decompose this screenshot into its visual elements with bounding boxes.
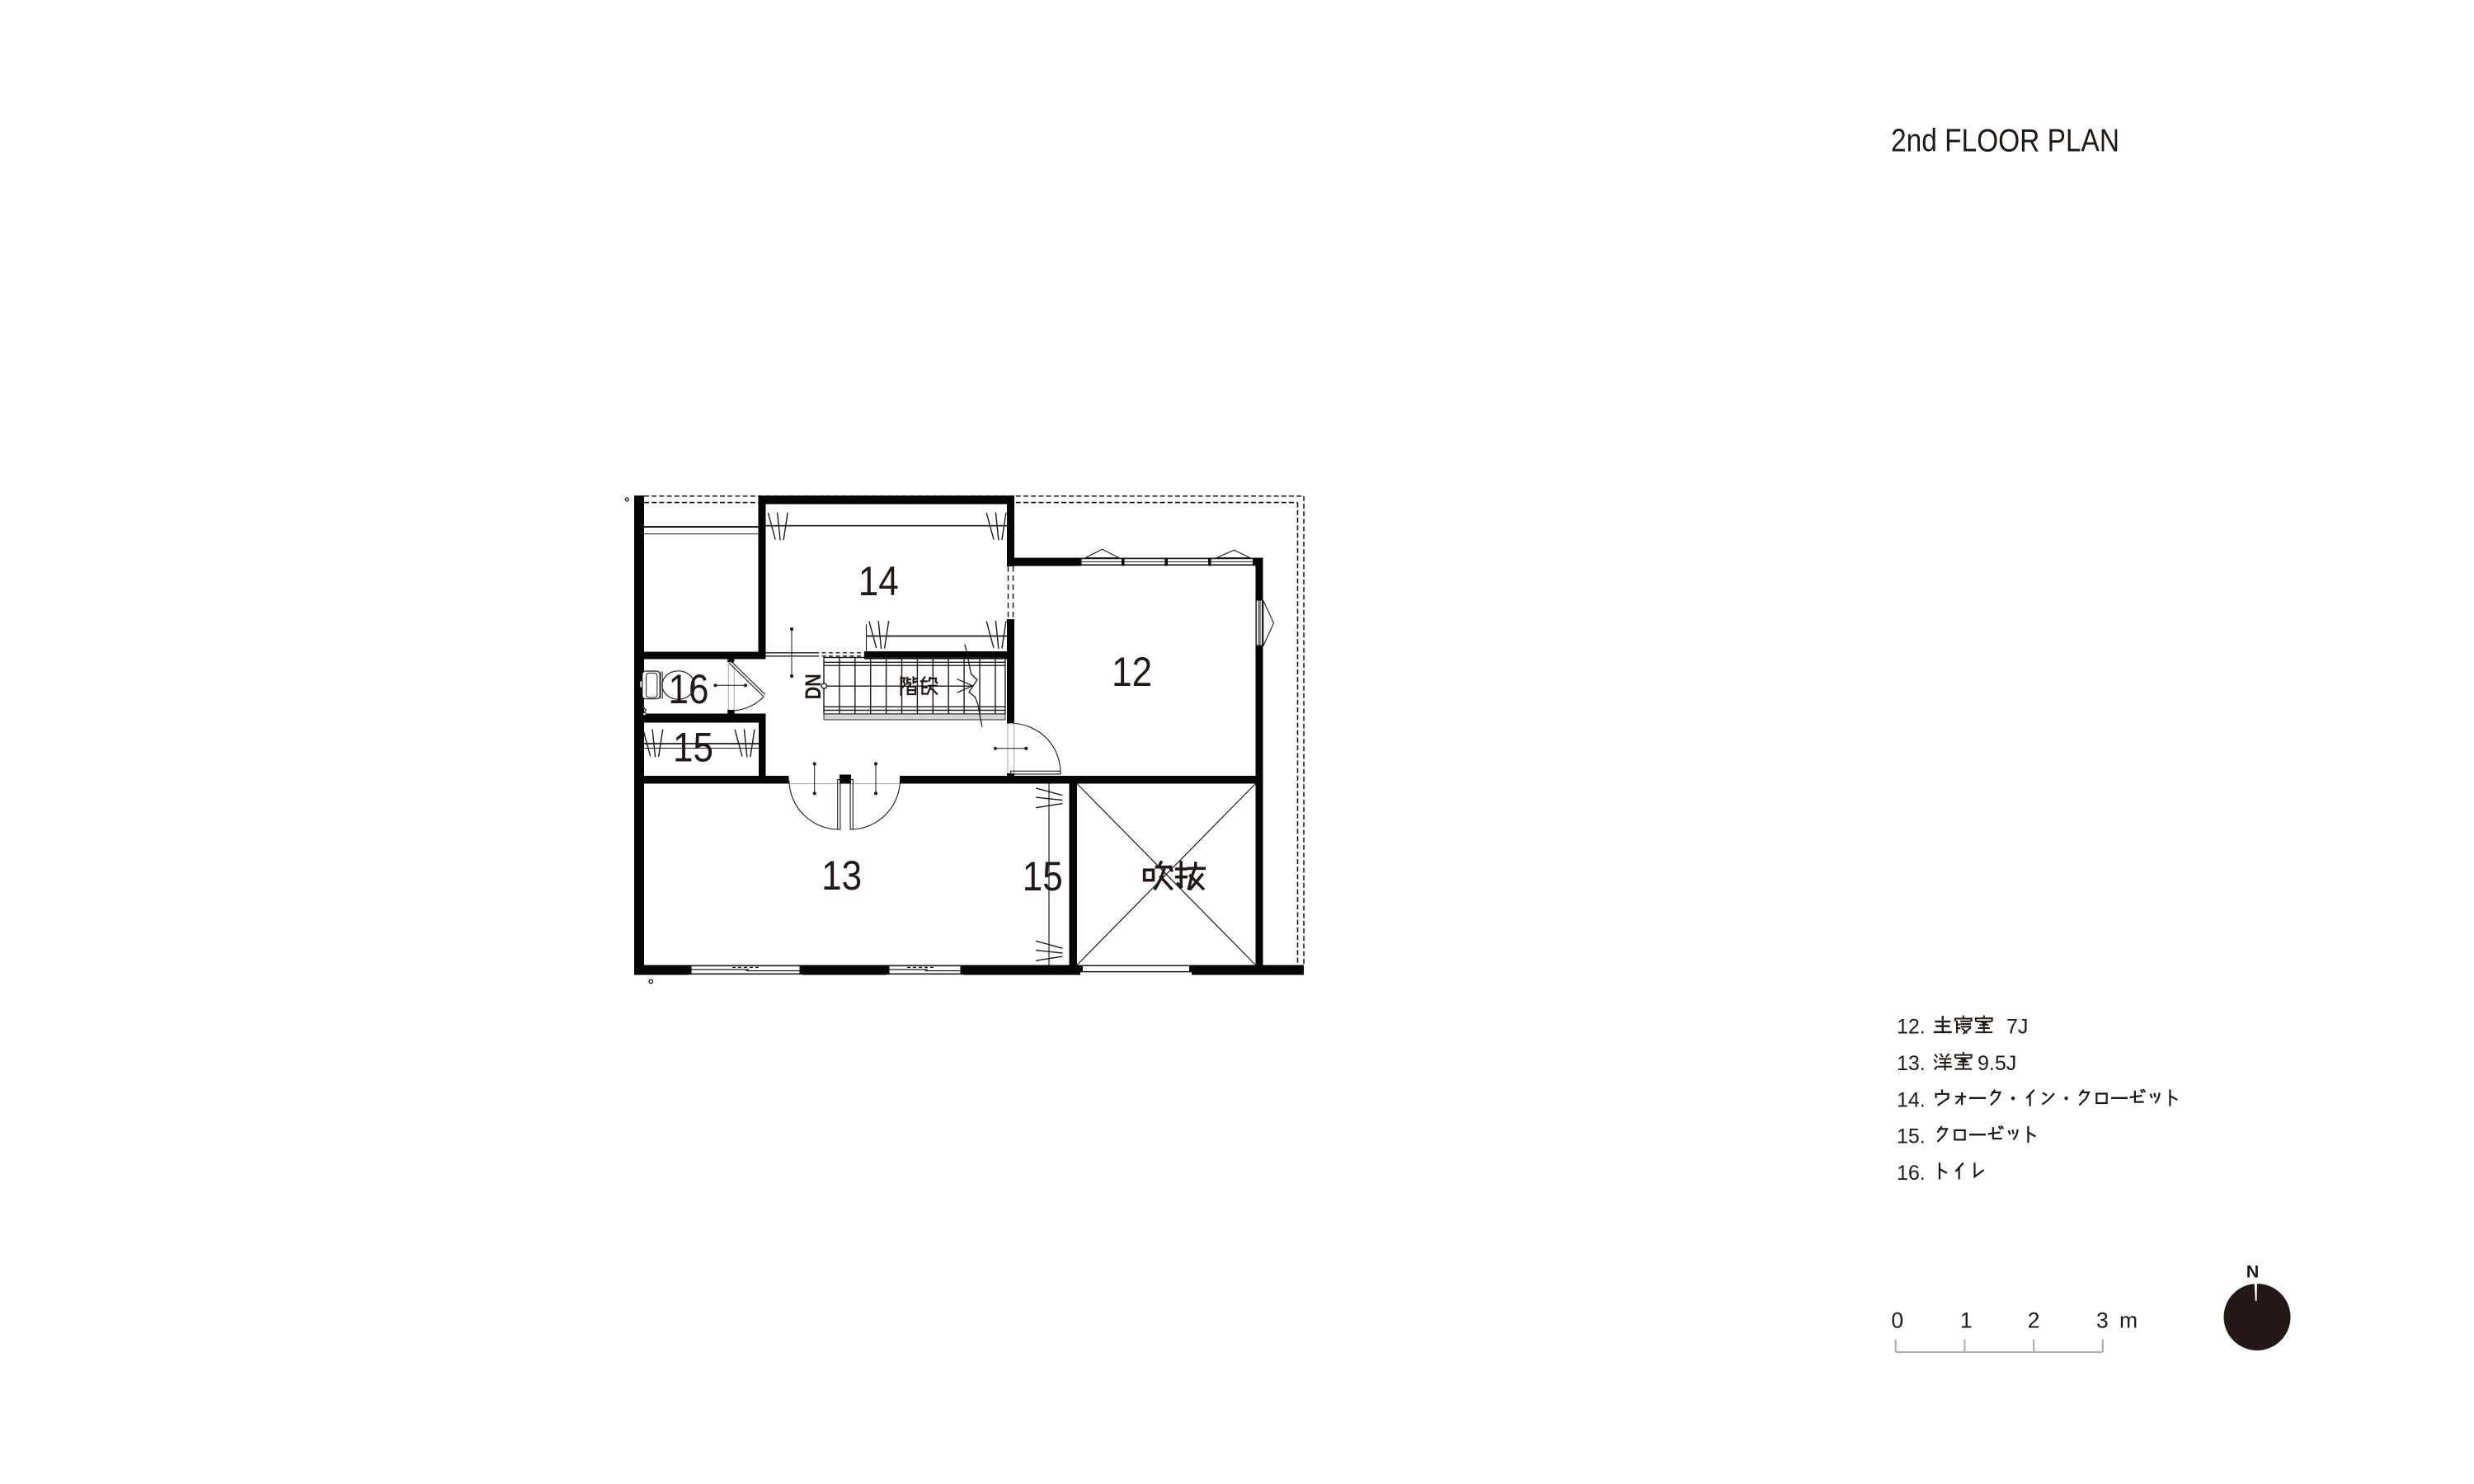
svg-text:2nd FLOOR PLAN: 2nd FLOOR PLAN bbox=[1891, 124, 2119, 159]
svg-text:15: 15 bbox=[673, 724, 713, 771]
svg-text:15.: 15. bbox=[1897, 1125, 1926, 1148]
svg-text:7J: 7J bbox=[2006, 1016, 2028, 1039]
svg-text:0: 0 bbox=[1891, 1308, 1903, 1333]
svg-text:N: N bbox=[2246, 1262, 2260, 1282]
svg-text:13.: 13. bbox=[1897, 1052, 1926, 1075]
svg-text:1: 1 bbox=[1960, 1308, 1973, 1333]
svg-text:13: 13 bbox=[821, 852, 862, 899]
svg-text:14: 14 bbox=[858, 557, 899, 604]
svg-text:2: 2 bbox=[2028, 1308, 2040, 1333]
svg-text:m: m bbox=[2119, 1308, 2138, 1333]
svg-text:16.: 16. bbox=[1897, 1162, 1926, 1185]
svg-text:14.: 14. bbox=[1897, 1088, 1926, 1111]
svg-text:DN: DN bbox=[801, 674, 825, 699]
svg-text:12: 12 bbox=[1112, 648, 1152, 695]
svg-text:9.5J: 9.5J bbox=[1978, 1052, 2016, 1075]
svg-text:12.: 12. bbox=[1897, 1016, 1926, 1039]
svg-text:3: 3 bbox=[2096, 1308, 2109, 1333]
svg-text:15: 15 bbox=[1023, 852, 1063, 899]
svg-text:16: 16 bbox=[669, 665, 709, 712]
